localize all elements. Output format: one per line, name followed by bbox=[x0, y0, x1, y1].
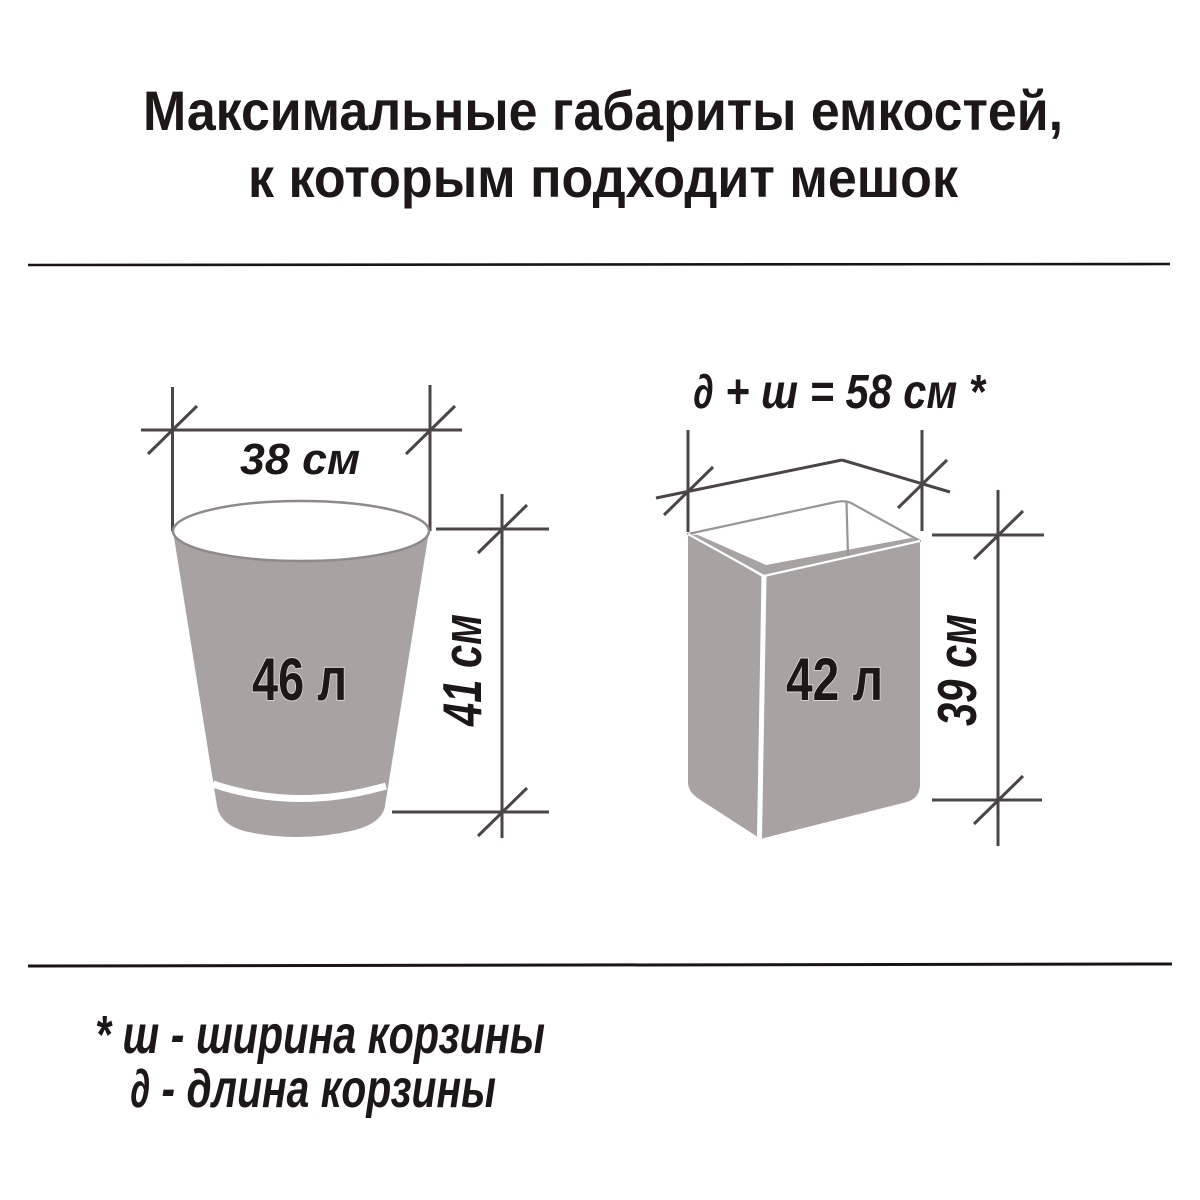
svg-text:46 л: 46 л bbox=[252, 646, 347, 713]
svg-text:42 л: 42 л bbox=[786, 646, 883, 713]
svg-text:41 см: 41 см bbox=[431, 614, 493, 727]
svg-text:∂ - длина корзины: ∂ - длина корзины bbox=[130, 1059, 496, 1119]
svg-text:Максимальные габариты емкостей: Максимальные габариты емкостей, bbox=[143, 79, 1063, 142]
svg-text:∂ + ш = 58 см *: ∂ + ш = 58 см * bbox=[693, 366, 987, 419]
svg-text:* ш - ширина корзины: * ш - ширина корзины bbox=[95, 1005, 545, 1065]
svg-text:39 см: 39 см bbox=[926, 614, 988, 726]
svg-text:38 см: 38 см bbox=[240, 435, 360, 484]
svg-text:к которым подходит мешок: к которым подходит мешок bbox=[248, 146, 959, 209]
